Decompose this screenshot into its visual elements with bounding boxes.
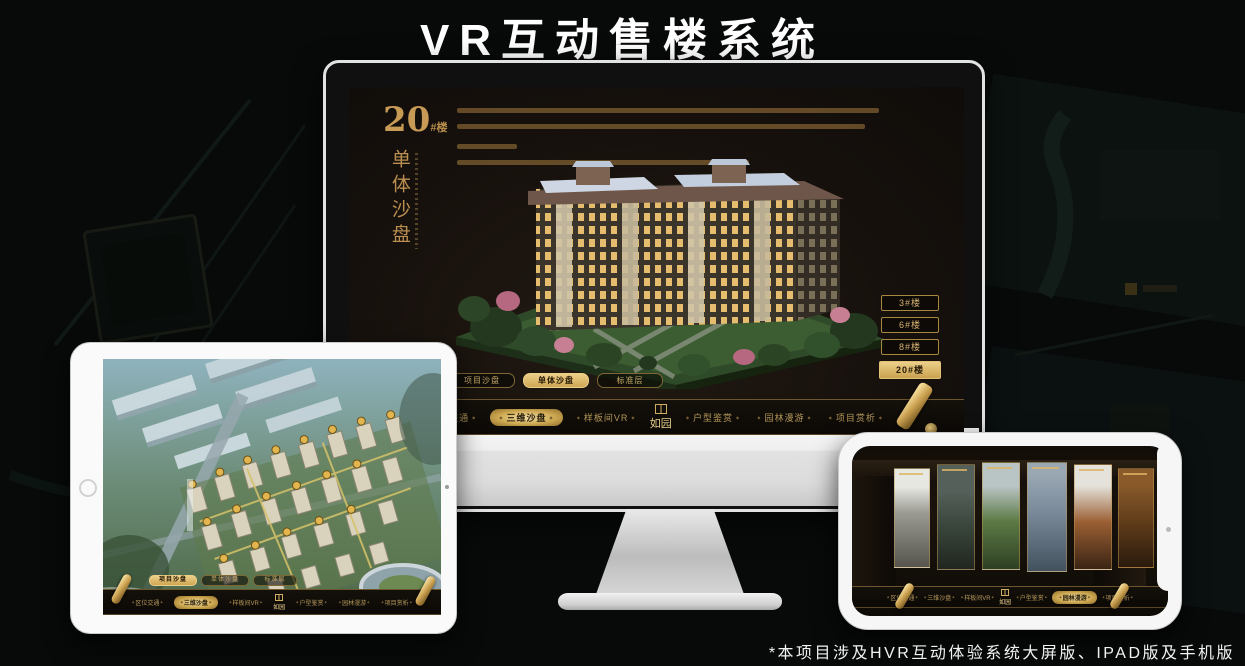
tablet-brand-logo[interactable]: 如园 [273, 594, 285, 611]
tablet-home-button[interactable] [79, 479, 97, 497]
phone-notch-bezel [1157, 443, 1179, 591]
tablet-nav-item-3d-sandbox[interactable]: 三维沙盘 [174, 596, 219, 609]
phone-nav-item-model-room-vr[interactable]: 样板间VR [960, 593, 995, 602]
poster-footnote: *本项目涉及HVR互动体验系统大屏版、IPAD版及手机版 [769, 639, 1235, 663]
phone-brand-seal-icon [1001, 589, 1009, 596]
nav-item-project-view[interactable]: 项目赏析 [826, 411, 886, 424]
tablet-nav-item-location[interactable]: 区位交通 [131, 598, 164, 607]
phone-nav-item-garden-roam[interactable]: 园林漫游 [1052, 591, 1097, 604]
building-heading: 20#楼 [383, 103, 447, 137]
tablet-screen: 项目沙盘 单体沙盘 标准层 区位交通 三维沙盘 样板间VR 如园 户型鉴赏 园林… [103, 359, 441, 615]
gallery-panel-4[interactable] [1027, 462, 1067, 572]
sub-tab-standard-floor[interactable]: 标准层 [597, 373, 663, 388]
floor-button-20[interactable]: 20#楼 [879, 361, 941, 379]
tablet-device: 项目沙盘 单体沙盘 标准层 区位交通 三维沙盘 样板间VR 如园 户型鉴赏 园林… [70, 342, 457, 634]
nav-item-3d-sandbox[interactable]: 三维沙盘 [490, 409, 562, 426]
phone-screen: 区位交通 三维沙盘 样板间VR 如园 户型鉴赏 园林漫游 项目赏析 [852, 446, 1168, 616]
sub-tab-single-sandbox[interactable]: 单体沙盘 [523, 373, 589, 388]
gallery-panel-2[interactable] [937, 464, 975, 570]
phone-device: 区位交通 三维沙盘 样板间VR 如园 户型鉴赏 园林漫游 项目赏析 [838, 432, 1182, 630]
tablet-sub-tab-project-sandbox[interactable]: 项目沙盘 [149, 575, 197, 586]
gallery-panel-6[interactable] [1118, 468, 1154, 568]
tablet-sub-tabs: 项目沙盘 单体沙盘 标准层 [149, 575, 297, 586]
nav-item-floorplan[interactable]: 户型鉴赏 [683, 411, 743, 424]
brand-seal-icon [655, 404, 667, 414]
phone-camera-icon [1166, 527, 1171, 532]
poster-title: VR互动售楼系统 [0, 4, 1245, 68]
floor-button-3[interactable]: 3#楼 [881, 295, 939, 311]
nav-item-model-room-vr[interactable]: 样板间VR [574, 411, 639, 424]
floor-button-6[interactable]: 6#楼 [881, 317, 939, 333]
nav-item-garden-roam[interactable]: 园林漫游 [754, 411, 814, 424]
sandbox-sub-tabs: 项目沙盘 单体沙盘 标准层 [449, 373, 663, 388]
tablet-nav-item-project-view[interactable]: 项目赏析 [380, 598, 413, 607]
monitor-stand-base [558, 593, 782, 610]
tablet-sub-tab-standard-floor[interactable]: 标准层 [253, 575, 297, 586]
gallery-panel-5[interactable] [1074, 464, 1112, 570]
tablet-brand-logo-text: 如园 [273, 602, 285, 611]
building-3d-render [444, 159, 890, 389]
brand-logo[interactable]: 如园 [650, 404, 672, 431]
tablet-sub-tab-single-sandbox[interactable]: 单体沙盘 [201, 575, 249, 586]
tablet-nav-item-floorplan[interactable]: 户型鉴赏 [295, 598, 328, 607]
floor-button-8[interactable]: 8#楼 [881, 339, 939, 355]
tablet-nav-bar: 区位交通 三维沙盘 样板间VR 如园 户型鉴赏 园林漫游 项目赏析 [103, 589, 441, 615]
tablet-nav-item-model-room-vr[interactable]: 样板间VR [228, 598, 263, 607]
subtitle-english-deco [415, 153, 418, 249]
courtyard-left-wall [852, 476, 896, 596]
tablet-brand-seal-icon [275, 594, 283, 601]
tablet-nav-item-garden-roam[interactable]: 园林漫游 [338, 598, 371, 607]
phone-nav-item-floorplan[interactable]: 户型鉴赏 [1015, 593, 1048, 602]
floor-button-group: 3#楼 6#楼 8#楼 20#楼 [879, 295, 941, 379]
monitor-stand-neck [595, 509, 745, 597]
brand-logo-text: 如园 [650, 415, 672, 431]
gallery-panel-1[interactable] [894, 468, 930, 568]
phone-brand-logo-text: 如园 [999, 597, 1011, 606]
phone-brand-logo[interactable]: 如园 [999, 589, 1011, 606]
phone-nav-item-3d-sandbox[interactable]: 三维沙盘 [923, 593, 956, 602]
poster-canvas: VR互动售楼系统 20#楼 单体沙盘 [0, 0, 1245, 666]
building-subtitle-vertical: 单体沙盘 [389, 149, 410, 249]
building-number-suffix: #楼 [430, 122, 447, 134]
gallery-panel-3[interactable] [982, 462, 1020, 570]
sub-tab-project-sandbox[interactable]: 项目沙盘 [449, 373, 515, 388]
tablet-camera-icon [445, 485, 449, 489]
building-number: 20 [383, 100, 430, 140]
